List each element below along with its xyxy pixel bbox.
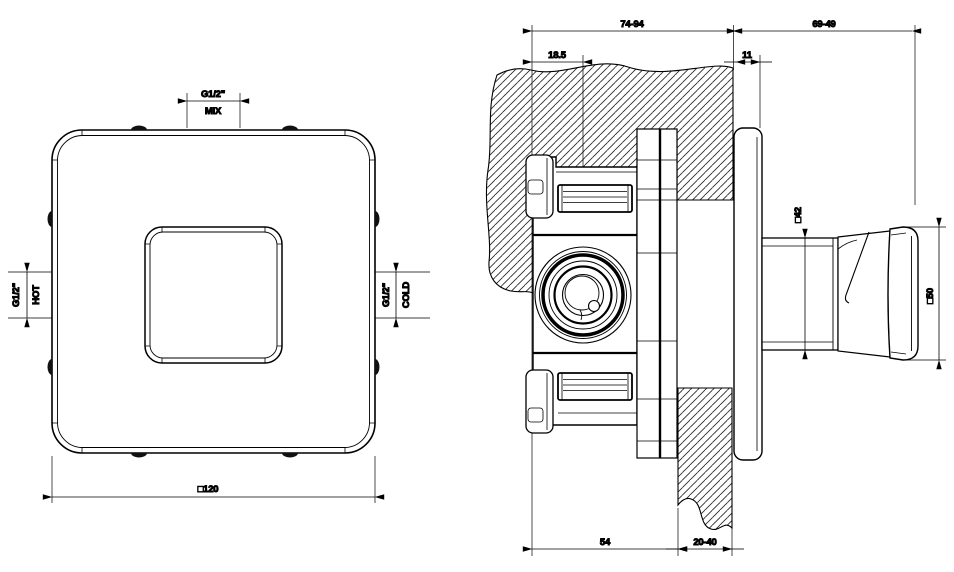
dim-mix-label: MIX [205, 106, 222, 117]
technical-drawing-page: G1/2" MIX G1/2" HOT G1/2" COLD □120 [0, 0, 954, 572]
handle-knob [888, 227, 918, 360]
dim-body-depth: 54 [532, 537, 678, 549]
dim-mix: G1/2" MIX [187, 89, 240, 128]
front-view: G1/2" MIX G1/2" HOT G1/2" COLD □120 [8, 89, 430, 503]
wall-section-lower [678, 388, 732, 529]
dim-body-depth-label: 54 [600, 537, 611, 548]
dim-overall-size-label: □120 [198, 484, 219, 495]
dim-recess-depth-label: 74-94 [620, 19, 644, 30]
dim-port-axis-depth-label: 18.5 [548, 50, 567, 61]
mounting-bracket [637, 129, 677, 458]
dim-wall-thickness-label: 20-40 [693, 537, 716, 548]
dim-mix-thread: G1/2" [201, 89, 225, 100]
dim-protrusion-label: 69-49 [812, 19, 835, 30]
dim-hot: G1/2" HOT [8, 272, 52, 318]
trim-plate [734, 128, 762, 460]
handle-front-outline [145, 227, 282, 363]
cartridge [535, 247, 631, 343]
dim-cold: G1/2" COLD [375, 272, 430, 318]
dim-plate-thickness: 11 [724, 50, 772, 62]
handle-stem [762, 238, 838, 350]
union-thread-bottom [558, 373, 632, 400]
handle-neck [838, 231, 890, 357]
shower-mixer-drawing: G1/2" MIX G1/2" HOT G1/2" COLD □120 [0, 0, 954, 572]
dim-overall-size: □120 [52, 456, 375, 503]
dim-recess-depth: 74-94 [532, 19, 733, 31]
dim-hot-thread: G1/2" [11, 283, 22, 307]
port-cap-bottom [526, 370, 553, 433]
dim-cold-label: COLD [401, 282, 412, 308]
union-thread-top [558, 185, 632, 212]
dim-knob-square: □50 [925, 227, 939, 360]
dim-cold-thread: G1/2" [381, 283, 392, 307]
stem-broach-notch [589, 301, 600, 312]
dim-plate-thickness-label: 11 [742, 50, 753, 61]
dim-stem-square-label: □42 [793, 207, 804, 223]
port-cap-top [526, 155, 553, 218]
dim-hot-label: HOT [31, 285, 42, 305]
section-view: 74-94 69-49 18.5 11 54 20-40 □42 [486, 19, 946, 556]
dim-protrusion: 69-49 [736, 19, 912, 31]
dim-knob-square-label: □50 [925, 288, 936, 304]
dim-port-axis-depth: 18.5 [532, 50, 583, 62]
